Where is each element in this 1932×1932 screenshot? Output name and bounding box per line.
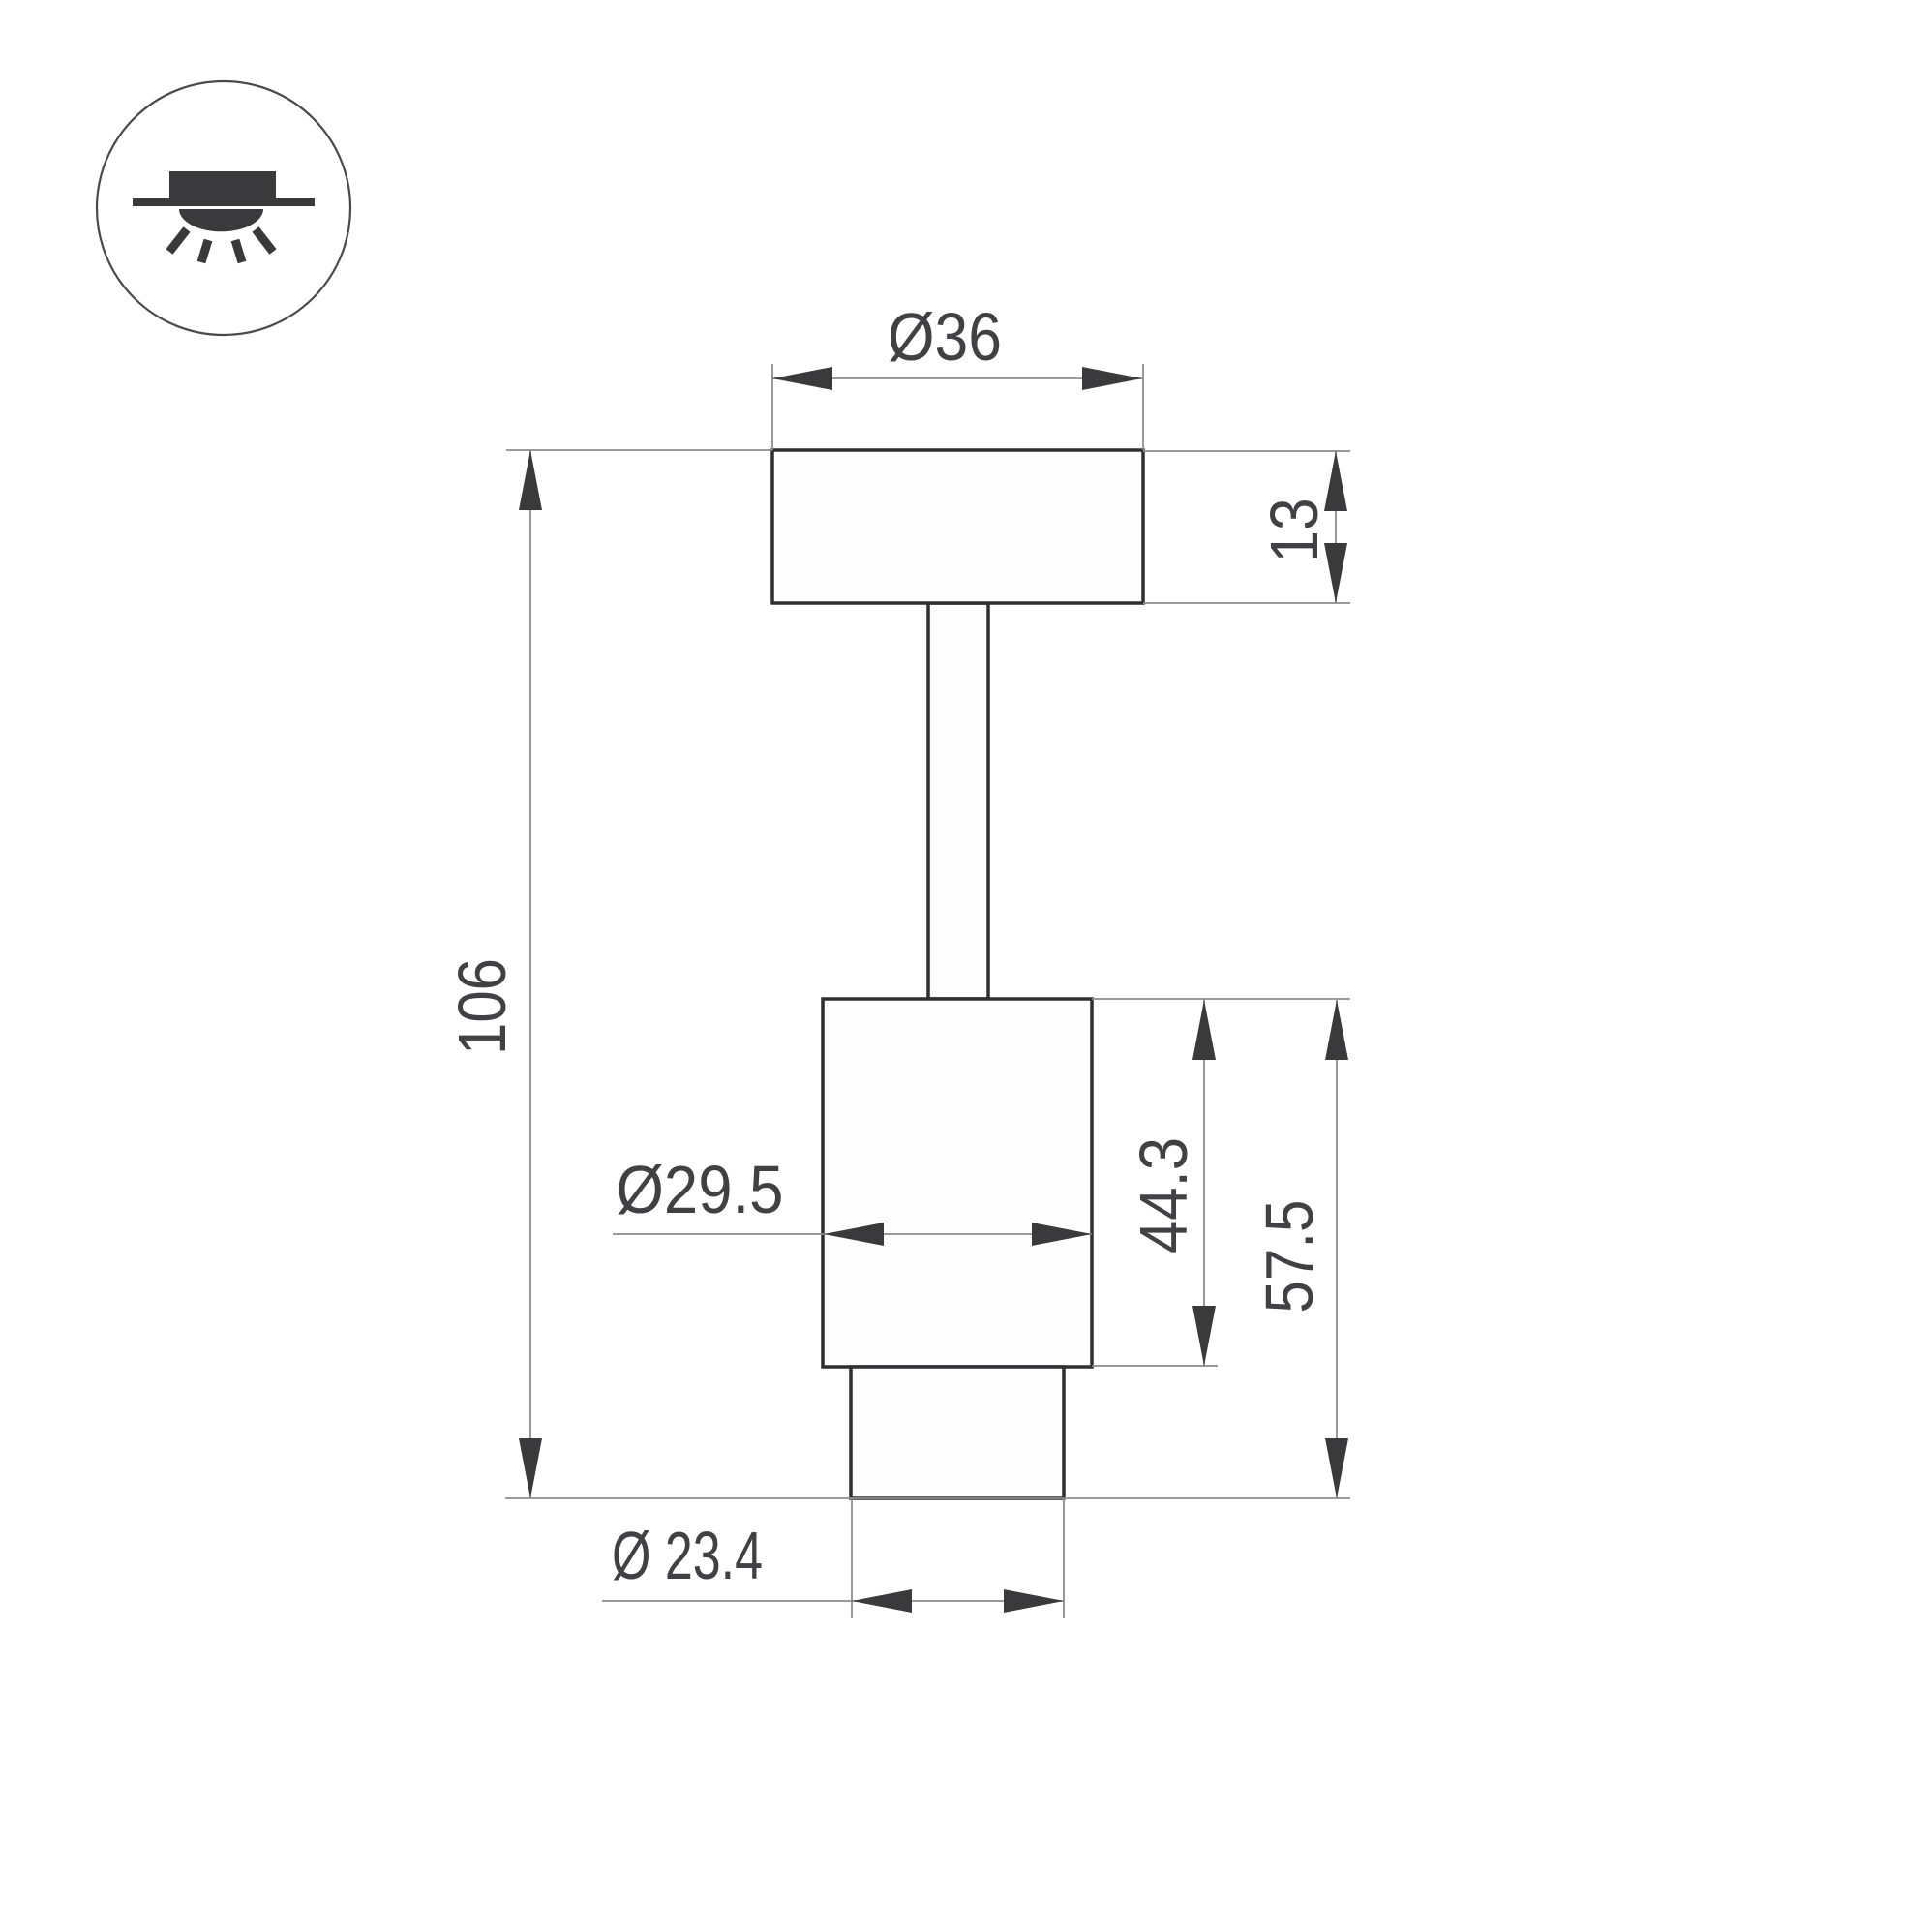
dimension-canopy-diameter: Ø36 [772, 299, 1142, 390]
dim-label-body-height: 44.3 [1126, 1137, 1201, 1253]
icon-housing-box [169, 171, 276, 199]
dim-arrow-left [772, 367, 832, 390]
ceiling-light-icon-circle [97, 81, 350, 335]
mount-type-icon [97, 81, 350, 335]
dim-label-overall-height: 106 [444, 958, 520, 1055]
dim-arrow-down [1192, 1306, 1216, 1366]
dim-arrow-up [519, 450, 542, 510]
dimension-body-nozzle-height: 57.5 [1252, 1000, 1348, 1498]
technical-drawing-page: Ø36 13 106 Ø29.5 44.3 57.5 [0, 0, 1932, 1932]
dimension-body-height: 44.3 [1126, 1000, 1216, 1366]
fixture-body-cylinder [823, 999, 1092, 1367]
dimension-overall-height: 106 [444, 450, 542, 1498]
fixture-stem [928, 603, 988, 999]
dimension-canopy-height: 13 [1256, 451, 1347, 603]
fixture-canopy-disc [772, 450, 1143, 603]
fixture-outline [772, 450, 1143, 1498]
dim-arrow-right [1004, 1589, 1064, 1613]
dim-label-body-diameter: Ø29.5 [617, 1152, 784, 1227]
dim-label-canopy-height: 13 [1256, 498, 1332, 563]
luminaire-dimension-drawing: Ø36 13 106 Ø29.5 44.3 57.5 [0, 0, 1932, 1932]
dimension-nozzle-diameter: Ø 23.4 [602, 1518, 1064, 1613]
dim-label-canopy-diameter: Ø36 [888, 299, 1002, 375]
dim-arrow-up [1325, 1000, 1348, 1060]
dim-label-nozzle-diameter: Ø 23.4 [612, 1518, 763, 1593]
dim-arrow-up [1192, 1000, 1216, 1060]
dim-arrow-left [852, 1589, 912, 1613]
icon-ceiling-line [133, 198, 315, 206]
dim-arrow-down [519, 1438, 542, 1498]
dim-arrow-down [1325, 1438, 1348, 1498]
dim-arrow-right [1082, 367, 1142, 390]
dim-label-body-nozzle-height: 57.5 [1252, 1200, 1327, 1313]
fixture-nozzle [851, 1367, 1064, 1498]
